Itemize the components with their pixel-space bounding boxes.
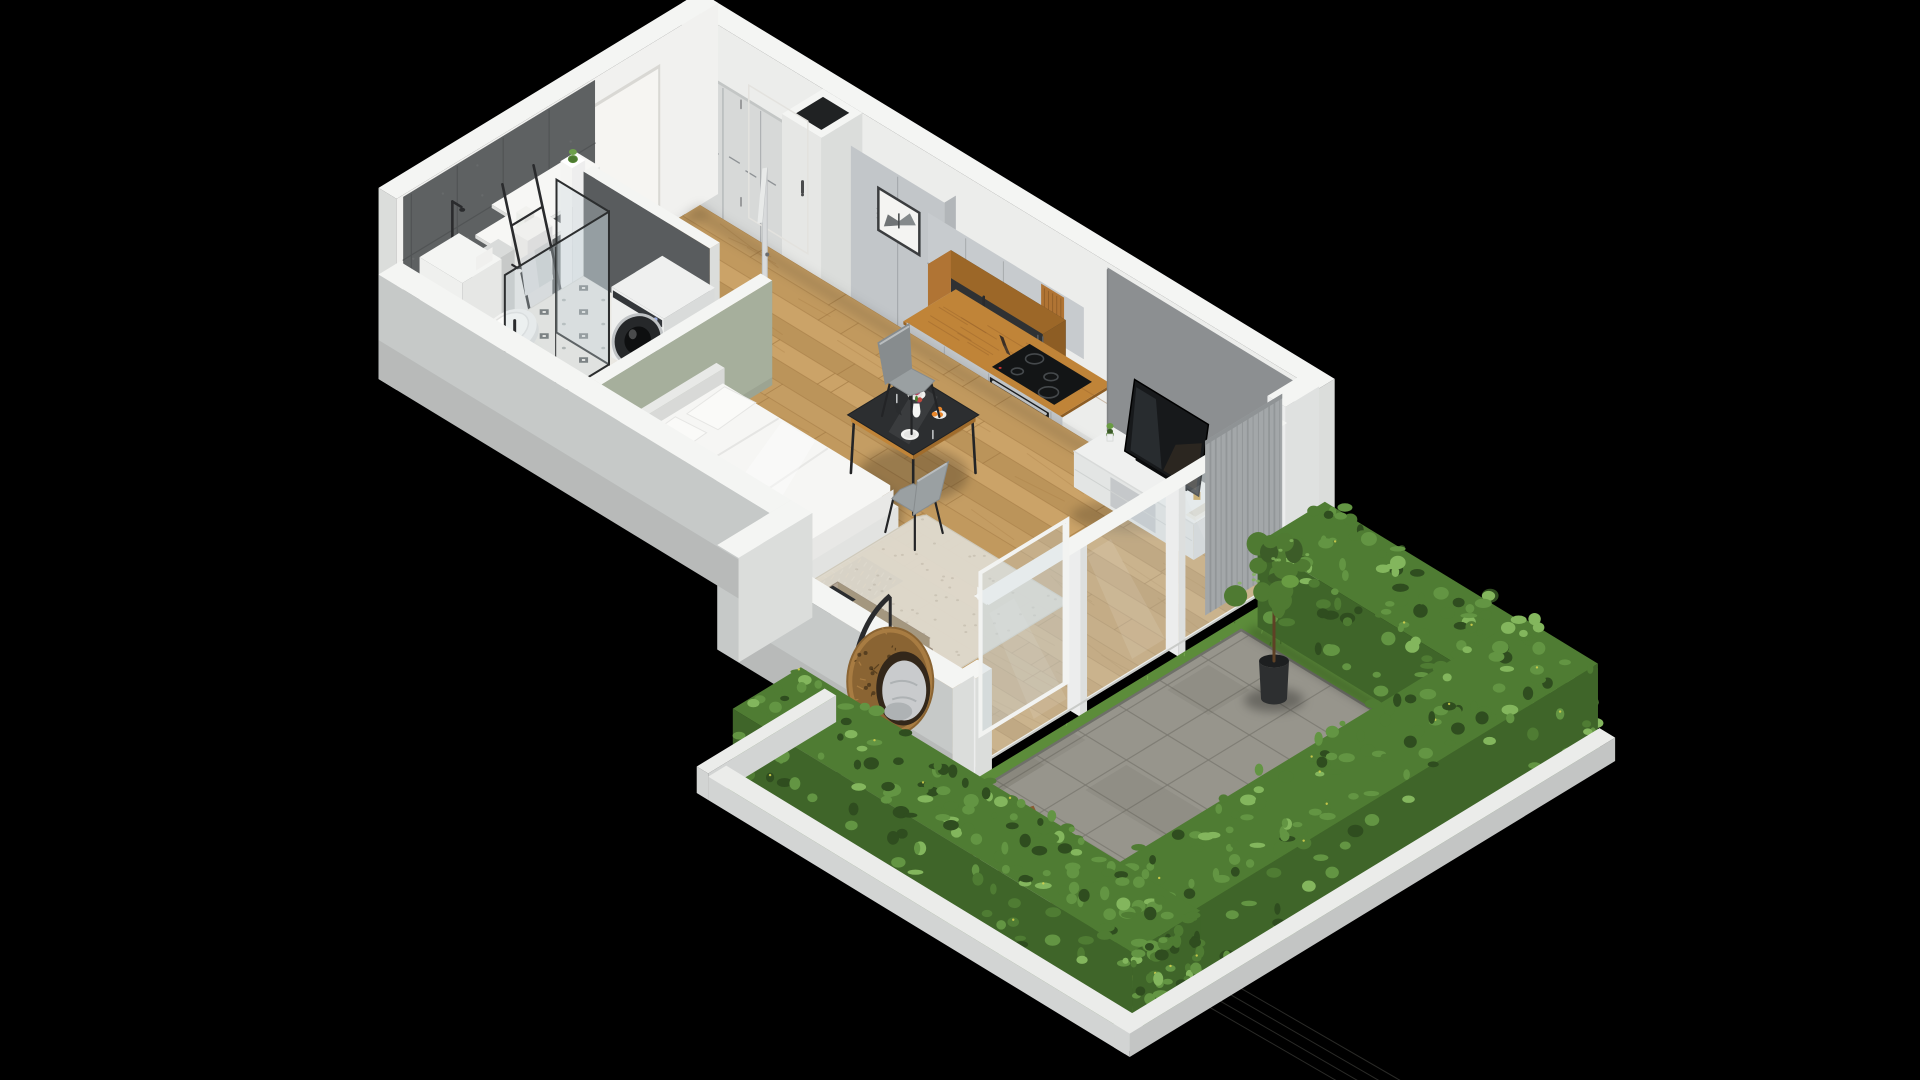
- floorplan-render: [0, 0, 1920, 1080]
- floorplan-stage: [0, 0, 1920, 1080]
